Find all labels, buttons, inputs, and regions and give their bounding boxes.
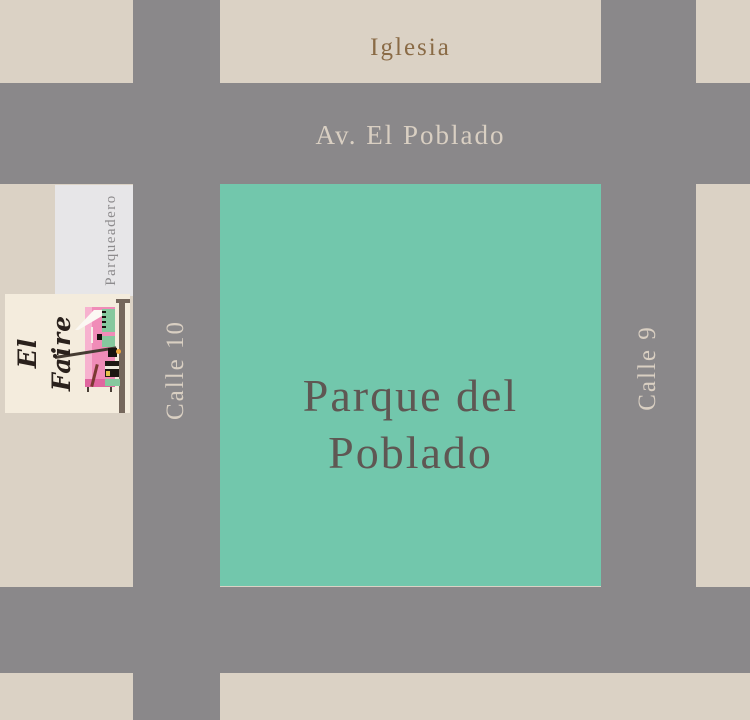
avenue-label: Av. El Poblado [220, 83, 601, 184]
parking-block [55, 185, 133, 296]
park-title-line2: Poblado [328, 427, 493, 478]
church-label: Iglesia [220, 0, 601, 83]
sidewalk-strip [119, 299, 125, 413]
park-title-line1: Parque del [303, 370, 518, 421]
storefront-window-lower [105, 379, 120, 386]
parking-label: Parqueadero [102, 180, 120, 300]
signal-light-icon [116, 349, 121, 354]
sidewalk-edge [116, 299, 130, 303]
street-bottom [0, 587, 750, 673]
el-faire-photo: El Faire [5, 294, 130, 413]
street-label-calle-10: Calle 10 [156, 250, 196, 490]
awning-post [91, 327, 93, 343]
storefront-window-mid [102, 336, 115, 347]
park-block: Parque del Poblado [220, 184, 601, 586]
park-title: Parque del Poblado [303, 367, 518, 481]
map-canvas: Parque del Poblado Iglesia Av. El Poblad… [0, 0, 750, 720]
building-foot-right [110, 387, 112, 392]
shop-crate [106, 371, 110, 376]
window-shutter [102, 311, 106, 330]
shop-doorway-stripe [105, 366, 119, 369]
building-foot-left [87, 387, 89, 392]
el-faire-script-logo: El Faire [11, 301, 45, 405]
street-label-calle-9: Calle 9 [628, 248, 668, 488]
